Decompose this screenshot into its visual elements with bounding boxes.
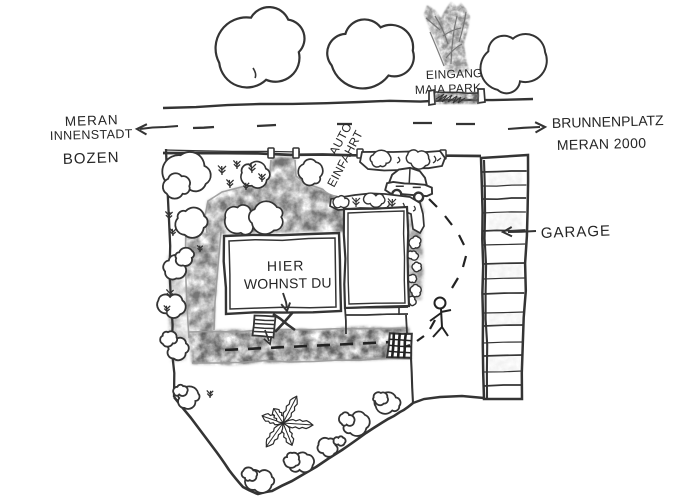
svg-text:HIER: HIER — [267, 257, 305, 274]
svg-text:INNENSTADT: INNENSTADT — [50, 127, 133, 143]
svg-text:EINGANG: EINGANG — [426, 66, 483, 82]
svg-text:MERAN 2000: MERAN 2000 — [557, 135, 647, 153]
svg-text:BOZEN: BOZEN — [63, 149, 120, 168]
svg-text:WOHNST DU: WOHNST DU — [244, 274, 332, 292]
svg-text:GARAGE: GARAGE — [541, 223, 612, 242]
svg-text:BRUNNENPLATZ: BRUNNENPLATZ — [552, 112, 665, 131]
